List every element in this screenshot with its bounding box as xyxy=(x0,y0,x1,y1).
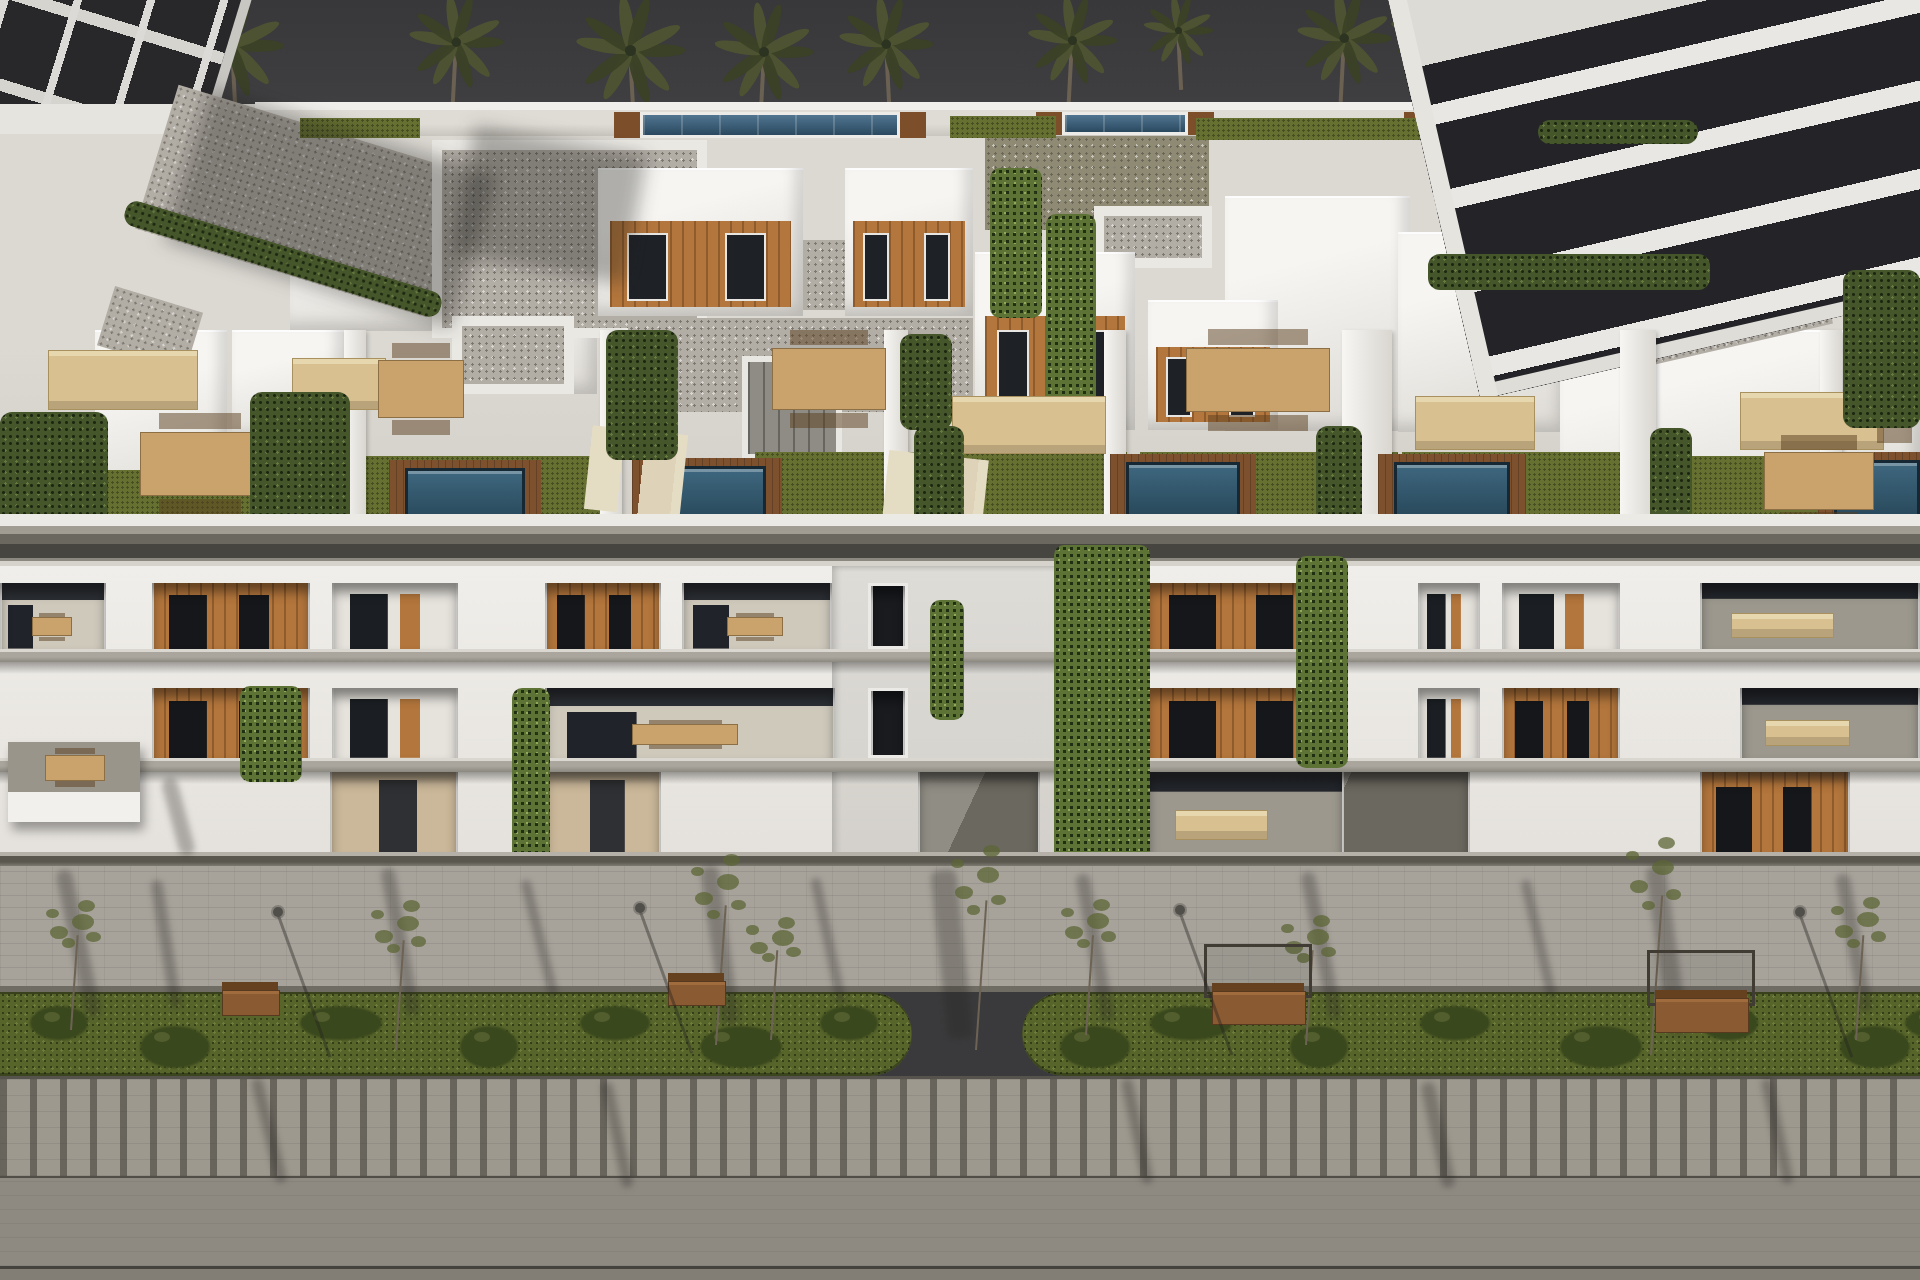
penthouse-window xyxy=(863,233,889,301)
tree-foliage xyxy=(786,947,801,958)
shrub-highlight xyxy=(1434,1012,1450,1022)
outdoor-dining-table xyxy=(772,348,886,410)
hedge xyxy=(606,330,678,460)
tree-foliage xyxy=(1847,939,1860,948)
hanging-vine xyxy=(930,600,964,720)
park-bench xyxy=(1655,998,1749,1033)
balcony-opening xyxy=(1700,772,1850,854)
penthouse xyxy=(845,168,973,316)
terrace-parapet xyxy=(0,514,1920,568)
tree-foliage xyxy=(371,910,384,919)
balcony-opening xyxy=(545,583,661,649)
park-bench xyxy=(668,981,726,1006)
shrub xyxy=(1560,1026,1642,1068)
tree-foliage xyxy=(411,936,426,947)
tree-foliage xyxy=(72,914,94,929)
planting-strip-left xyxy=(0,992,912,1076)
tree-foliage xyxy=(1871,931,1886,942)
hanging-vine xyxy=(240,686,302,782)
balcony-window xyxy=(1418,688,1480,758)
street-lamp xyxy=(1175,905,1185,915)
outdoor-sofa xyxy=(952,396,1106,454)
tree-foliage xyxy=(1630,880,1648,893)
palm-fronds xyxy=(1292,0,1397,90)
balcony-terrace xyxy=(545,688,835,758)
tree-foliage xyxy=(50,926,68,939)
palm-fronds xyxy=(1140,0,1217,69)
tree-foliage xyxy=(1321,947,1336,958)
palm-fronds xyxy=(709,0,819,107)
tree-foliage xyxy=(1087,913,1109,928)
shrub xyxy=(1060,1026,1130,1068)
balcony-terrace xyxy=(1740,688,1920,758)
tree-foliage xyxy=(62,938,75,947)
penthouse-window xyxy=(627,233,668,301)
hedge xyxy=(1428,254,1710,290)
tree-foliage xyxy=(1658,837,1675,849)
outdoor-sofa xyxy=(1415,396,1535,450)
ivy-wall xyxy=(990,168,1042,318)
hanging-vine xyxy=(1296,556,1348,768)
balcony-window xyxy=(1502,583,1620,649)
balcony-sofa xyxy=(1175,810,1267,840)
outdoor-dining-table xyxy=(1186,348,1330,412)
hanging-vine xyxy=(1054,545,1150,875)
shrub xyxy=(140,1026,210,1068)
tree-foliage xyxy=(1093,899,1110,911)
tree-foliage xyxy=(403,900,420,912)
balcony-terrace xyxy=(1148,772,1344,854)
tree-foliage xyxy=(1835,925,1853,938)
shrub-highlight xyxy=(594,1012,610,1022)
tree-foliage xyxy=(1065,926,1083,939)
balcony-table xyxy=(45,755,105,781)
tree-foliage xyxy=(86,932,101,943)
shrub xyxy=(820,1006,878,1040)
balcony-table xyxy=(32,617,72,636)
tree-foliage xyxy=(1863,897,1880,909)
shrub xyxy=(580,1006,650,1040)
shrub-highlight xyxy=(1574,1032,1590,1042)
gravel-roof xyxy=(452,316,574,394)
palm-tree xyxy=(404,0,509,94)
outdoor-dining-table xyxy=(140,432,260,496)
penthouse-window xyxy=(924,233,950,301)
outdoor-sofa xyxy=(48,350,198,410)
balcony-window xyxy=(332,688,458,758)
tree-foliage xyxy=(1061,908,1074,917)
outdoor-dining-table xyxy=(378,360,464,418)
entrance-door xyxy=(330,772,458,854)
tree-foliage xyxy=(967,905,980,914)
park-bench xyxy=(1212,991,1306,1025)
lap-pool xyxy=(640,112,900,138)
architectural-rendering xyxy=(0,0,1920,1280)
palm-tree xyxy=(1023,0,1122,90)
tree-foliage xyxy=(1101,931,1116,942)
tree-foliage xyxy=(695,892,713,905)
balcony-opening xyxy=(152,583,310,649)
entrance-door xyxy=(545,772,661,854)
tree-foliage xyxy=(991,895,1006,906)
hedge xyxy=(900,334,952,430)
balcony-box xyxy=(8,742,140,822)
palm-tree xyxy=(1292,0,1397,90)
tree-foliage xyxy=(746,925,759,934)
shrub-highlight xyxy=(154,1032,170,1042)
balcony-terrace xyxy=(1700,583,1920,649)
tree-foliage xyxy=(717,874,739,889)
tree-foliage xyxy=(723,854,740,866)
tree-foliage xyxy=(387,944,400,953)
tree-foliage xyxy=(977,867,999,882)
hedge xyxy=(1538,120,1698,144)
balcony-sofa xyxy=(1765,720,1850,746)
entrance-courtyard xyxy=(918,772,1040,854)
street-lamp xyxy=(635,903,645,913)
tree-foliage xyxy=(375,930,393,943)
street-lamp xyxy=(1795,907,1805,917)
balcony-window xyxy=(332,583,458,649)
tree-foliage xyxy=(691,867,704,876)
balcony-sofa xyxy=(1731,613,1834,637)
palm-fronds xyxy=(404,0,509,94)
balcony-terrace xyxy=(682,583,832,649)
tree-foliage xyxy=(1666,889,1681,900)
balcony-terrace xyxy=(0,583,106,649)
roof-turf xyxy=(950,116,1056,138)
palm-tree xyxy=(570,0,691,111)
shrub-highlight xyxy=(474,1032,490,1042)
window xyxy=(868,688,908,758)
shrub-highlight xyxy=(44,1012,60,1022)
pool-wood-end xyxy=(900,112,926,138)
balcony-table xyxy=(632,724,738,744)
shrub-highlight xyxy=(1074,1032,1090,1042)
shrub xyxy=(30,1006,88,1040)
shrub xyxy=(460,1026,518,1068)
shrub xyxy=(1290,1026,1348,1068)
tree-foliage xyxy=(1077,939,1090,948)
pool-wood-end xyxy=(614,112,640,138)
lower-pavement xyxy=(0,1176,1920,1280)
shrub xyxy=(1420,1006,1490,1040)
lap-pool xyxy=(1062,112,1188,135)
balcony-window xyxy=(1418,583,1480,649)
tree-foliage xyxy=(772,930,794,945)
balcony-opening xyxy=(1502,688,1620,758)
palm-fronds xyxy=(834,0,939,96)
hedge xyxy=(1843,270,1920,428)
palm-fronds xyxy=(570,0,691,111)
palm-tree xyxy=(709,0,819,107)
shrub xyxy=(1840,1026,1910,1068)
outdoor-dining-table xyxy=(1764,452,1874,510)
pavement-edge xyxy=(0,1266,1920,1280)
street-lamp xyxy=(273,907,283,917)
park-bench xyxy=(222,990,280,1016)
tree-foliage xyxy=(955,886,973,899)
mid-pavement xyxy=(0,1076,1920,1176)
palm-tree xyxy=(1140,0,1217,69)
tree-foliage xyxy=(1307,929,1329,944)
shrub-highlight xyxy=(1164,1012,1180,1022)
roof-turf xyxy=(1196,118,1424,140)
window xyxy=(868,583,908,649)
hanging-vine xyxy=(512,688,550,866)
balcony-table xyxy=(727,617,783,636)
tree-foliage xyxy=(1642,901,1655,910)
shrub-highlight xyxy=(834,1012,850,1022)
palm-tree xyxy=(834,0,939,96)
penthouse-window xyxy=(725,233,766,301)
palm-fronds xyxy=(1023,0,1122,90)
